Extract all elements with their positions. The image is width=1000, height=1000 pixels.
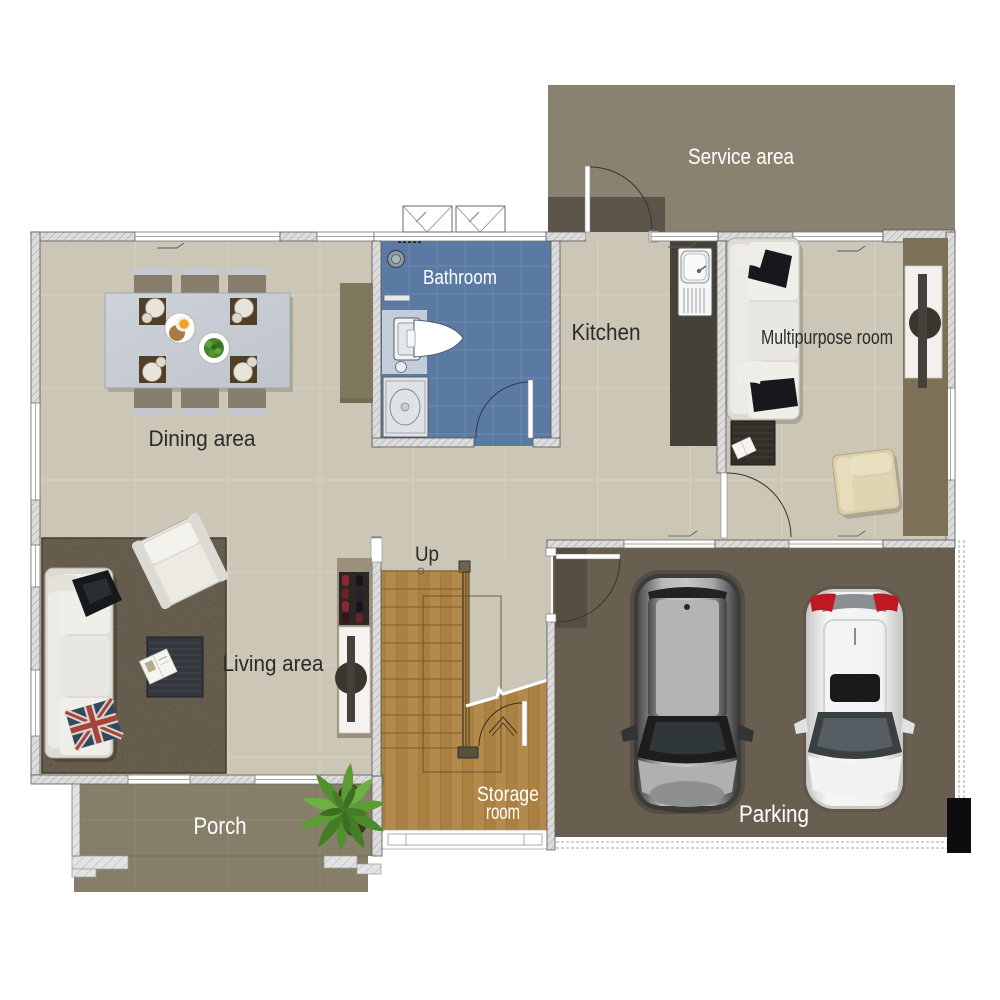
svg-text:Up: Up bbox=[415, 543, 439, 566]
svg-text:room: room bbox=[486, 801, 520, 824]
svg-text:Living area: Living area bbox=[223, 651, 325, 676]
svg-text:Porch: Porch bbox=[194, 813, 247, 840]
svg-text:Parking: Parking bbox=[739, 801, 809, 828]
svg-text:Service area: Service area bbox=[688, 144, 795, 169]
svg-text:Bathroom: Bathroom bbox=[423, 267, 497, 289]
svg-text:Multipurpose room: Multipurpose room bbox=[761, 327, 893, 349]
svg-text:Kitchen: Kitchen bbox=[572, 319, 641, 345]
svg-text:Dining area: Dining area bbox=[149, 426, 257, 451]
